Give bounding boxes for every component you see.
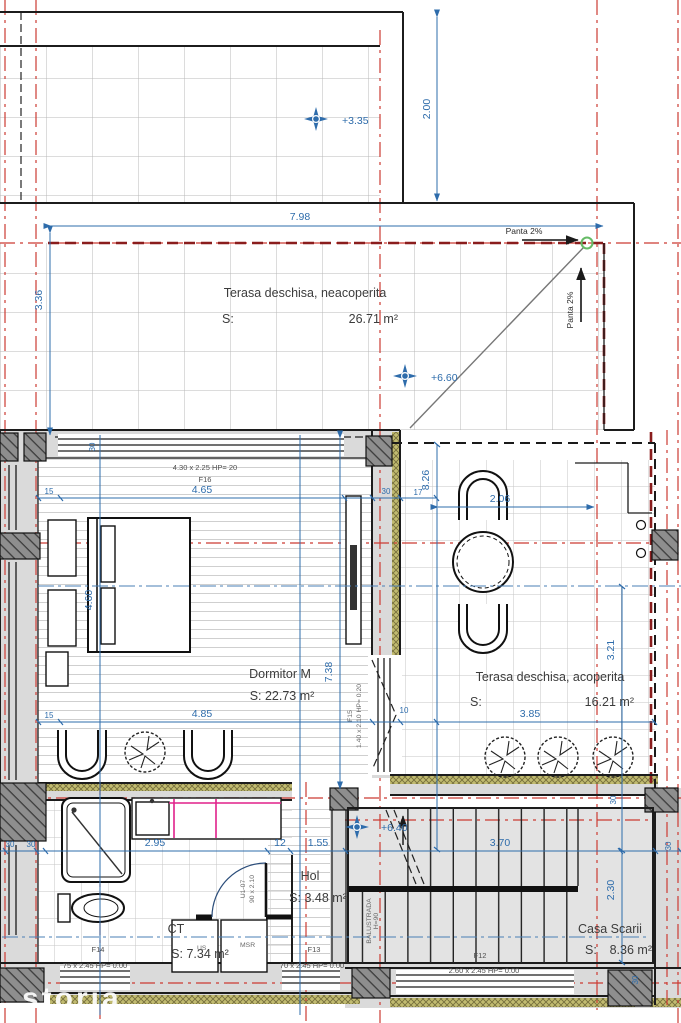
tv xyxy=(350,545,357,610)
elevation-640: +6.40 xyxy=(381,822,408,834)
dim-hol-b: 1.55 xyxy=(308,837,329,849)
round-table xyxy=(453,532,513,592)
dim-top-width: 7.98 xyxy=(290,211,311,223)
door-u107-size: 90 x 2.10 xyxy=(249,875,256,903)
door-u107-code: U1-07 xyxy=(240,880,247,899)
armchair xyxy=(184,730,232,779)
sink xyxy=(136,802,169,835)
window-f13-size: 70 x 2.45 HP= 0.00 xyxy=(280,961,344,970)
dim-dorm-total-h: 7.38 xyxy=(323,662,335,683)
room-terasa-right-name: Terasa deschisa, acoperita xyxy=(476,670,625,684)
pillow xyxy=(101,526,115,582)
window-f16-size: 4.30 x 2.25 HP= 20 xyxy=(173,463,237,472)
window-f15-code: F15 xyxy=(347,710,354,722)
appliance-label-msr: MSR xyxy=(240,942,255,949)
dim-terrace-bottom: 3.85 xyxy=(520,708,541,720)
dim-top-height: 3.36 xyxy=(33,290,45,311)
room-hol-area: S: 3.48 m² xyxy=(289,891,347,905)
appliance-label-us: US xyxy=(197,945,207,952)
room-casa-scarii-area: 8.36 m² xyxy=(610,943,652,957)
floor-plan-canvas: +3.35 +6.60 +6.40 7.98 2.00 3.36 Panta 2… xyxy=(0,0,681,1023)
nightstand xyxy=(48,590,76,646)
elevation-335: +3.35 xyxy=(342,115,369,127)
room-dormitor-area: S: 22.73 m² xyxy=(250,689,315,703)
room-dormitor-name: Dormitor M xyxy=(249,667,311,681)
dim-30e: 30 xyxy=(27,840,36,849)
dim-stair-width: 3.70 xyxy=(490,837,511,849)
window-f12-code: F12 xyxy=(474,951,487,960)
dim-stair-height: 2.30 xyxy=(605,880,617,901)
dim-30b: 30 xyxy=(88,442,97,451)
watermark: storia xyxy=(22,982,122,1015)
dim-dorm-top: 4.65 xyxy=(192,484,213,496)
slope-label-v: Panta 2% xyxy=(565,291,575,328)
dim-30f: 30 xyxy=(664,841,673,850)
dim-10: 10 xyxy=(400,706,409,715)
elevation-660: +6.60 xyxy=(431,372,458,384)
room-terasa-top-name: Terasa deschisa, neacoperita xyxy=(224,286,387,300)
slope-label-h: Panta 2% xyxy=(506,226,543,236)
dim-30g: 30 xyxy=(631,975,640,984)
window-f14-size: 75 x 2.45 HP= 0.00 xyxy=(63,961,127,970)
window-f15-size: 1.40 x 2.10 HP= 0.20 xyxy=(356,684,363,748)
dim-dorm-height: 4.60 xyxy=(83,590,95,611)
pillow xyxy=(101,588,115,644)
room-terasa-top-area: 26.71 m² xyxy=(349,312,398,326)
window-f13-code: F13 xyxy=(308,945,321,954)
dim-15a: 15 xyxy=(45,487,54,496)
dresser xyxy=(46,652,68,686)
window-f12-size: 2.60 x 2.45 HP= 0.00 xyxy=(449,966,520,975)
room-terasa-right-area: 16.21 m² xyxy=(585,695,634,709)
dim-15b: 15 xyxy=(45,711,54,720)
room-terasa-right-s: S: xyxy=(470,695,482,709)
armchair xyxy=(58,730,106,779)
dim-30c: 30 xyxy=(609,795,618,804)
room-terasa-top-s: S: xyxy=(222,312,234,326)
dim-terrace-width: 2.06 xyxy=(490,493,511,505)
nightstand xyxy=(48,520,76,576)
dim-terrace-inner-h: 3.21 xyxy=(605,640,617,661)
balustrade-height: H=90 xyxy=(373,913,380,930)
toilet-tank xyxy=(58,894,70,922)
room-hol-name: Hol xyxy=(301,869,320,883)
dim-top-offset: 2.00 xyxy=(421,99,433,120)
dim-30d: 30 xyxy=(6,840,15,849)
floor-plan-drawing: +3.35 +6.60 +6.40 7.98 2.00 3.36 Panta 2… xyxy=(0,0,681,1023)
dim-terrace-total-h: 8.26 xyxy=(420,470,432,491)
room-casa-scarii-s: S: xyxy=(585,943,597,957)
window-f14-code: F14 xyxy=(92,945,105,954)
room-casa-scarii-name: Casa Scarii xyxy=(578,922,642,936)
dim-ct-width: 2.95 xyxy=(145,837,166,849)
window-f16-code: F16 xyxy=(199,475,212,484)
dim-30a: 30 xyxy=(382,487,391,496)
chair xyxy=(459,604,507,653)
room-ct-name: CT xyxy=(168,922,185,936)
dim-dorm-bottom: 4.85 xyxy=(192,708,213,720)
dim-hol-a: 12 xyxy=(274,837,286,849)
balustrade-label: BALUSTRADA xyxy=(366,898,373,944)
toilet xyxy=(72,894,124,922)
